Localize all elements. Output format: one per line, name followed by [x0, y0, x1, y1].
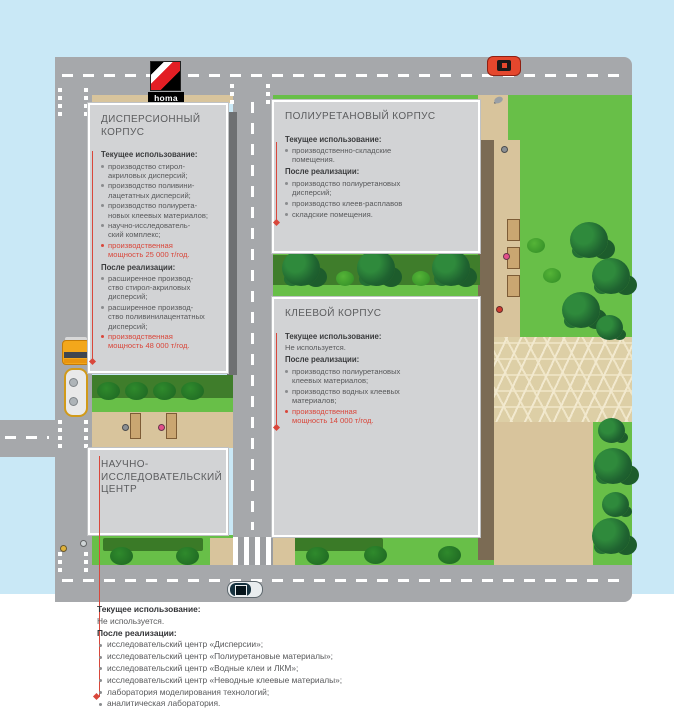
list-item: аналитическая лаборатория.	[97, 698, 527, 710]
list-item: Не используется.	[285, 343, 472, 352]
detail-text: Не используется.	[97, 616, 527, 628]
road-left	[55, 57, 92, 602]
bush-icon	[527, 238, 545, 253]
card-title: ДИСПЕРСИОННЫЙ КОРПУС	[101, 114, 220, 139]
list-item-highlight: производственная мощность 25 000 т/год.	[101, 241, 220, 259]
red-leader-line	[276, 142, 277, 224]
card-title: ПОЛИУРЕТАНОВЫЙ КОРПУС	[285, 111, 472, 124]
tree-icon	[598, 418, 625, 443]
list-item: научно-исследователь- ский комплекс;	[101, 221, 220, 239]
plaza-lower	[494, 422, 593, 565]
card-title: НАУЧНО- ИССЛЕДОВАТЕЛЬСКИЙ ЦЕНТР	[101, 459, 220, 497]
card-title: КЛЕЕВОЙ КОРПУС	[285, 308, 472, 321]
crosswalk-dots	[84, 552, 88, 572]
red-car-icon	[487, 56, 521, 76]
crosswalk-dots	[230, 84, 234, 104]
crosswalk-dots	[58, 88, 62, 116]
list-item: складские помещения.	[285, 210, 472, 219]
grass-strip-left	[92, 398, 233, 412]
list-item: расширенное производ- ство стирол-акрило…	[101, 274, 220, 302]
bush-icon	[306, 547, 329, 565]
adhesive-building-card: КЛЕЕВОЙ КОРПУС Текущее использование: Не…	[272, 297, 480, 537]
dispersion-building-roof-edge	[227, 112, 237, 375]
section-header: Текущее использование:	[285, 332, 472, 342]
list-item: исследовательский центр «Дисперсии»;	[97, 639, 527, 651]
road-bottom-centerline	[62, 579, 625, 582]
red-leader-line	[92, 151, 93, 363]
list-item: производство клеев-расплавов	[285, 199, 472, 208]
red-leader-line	[276, 333, 277, 429]
list-item-highlight: производственная мощность 48 000 т/год.	[101, 332, 220, 350]
bush-icon	[153, 382, 176, 400]
list-item: производство водных клеевых материалов;	[285, 387, 472, 405]
pedestrian-icon	[122, 424, 129, 431]
pedestrian-icon	[60, 545, 67, 552]
red-diamond-marker	[273, 424, 280, 431]
stone-plaza	[494, 337, 632, 422]
section-header: После реализации:	[101, 263, 220, 273]
tree-icon	[432, 250, 470, 286]
red-diamond-marker	[273, 219, 280, 226]
crosswalk-dots	[58, 552, 62, 572]
list-item: производство полиуретановых дисперсий;	[285, 179, 472, 197]
pedestrian-icon	[501, 146, 508, 153]
section-header: После реализации:	[285, 167, 472, 177]
list-item: исследовательский центр «Водные клеи и Л…	[97, 663, 527, 675]
bush-icon	[181, 382, 204, 400]
crosswalk-apron	[273, 538, 295, 565]
road-branch-centerline	[5, 436, 49, 439]
section-header: После реализации:	[97, 628, 527, 640]
tree-icon	[592, 518, 630, 554]
section-header: Текущее использование:	[101, 150, 220, 160]
bush-icon	[110, 547, 133, 565]
sedan-car-icon	[227, 581, 263, 598]
list-item: исследовательский центр «Неводные клеевы…	[97, 675, 527, 687]
research-center-card: НАУЧНО- ИССЛЕДОВАТЕЛЬСКИЙ ЦЕНТР	[88, 448, 228, 535]
crosswalk-apron	[210, 538, 233, 565]
list-item: производство поливини- лацетатных диспер…	[101, 181, 220, 199]
list-item: расширенное производ- ство поливинилацен…	[101, 303, 220, 331]
tree-icon	[282, 250, 320, 286]
road-central-centerline	[251, 102, 254, 530]
section-header: Текущее использование:	[285, 135, 472, 145]
pedestrian-icon	[503, 253, 510, 260]
pedestrian-icon	[158, 424, 165, 431]
list-item-highlight: производственная мощность 14 000 т/год.	[285, 407, 472, 425]
polyurethane-building-card: ПОЛИУРЕТАНОВЫЙ КОРПУС Текущее использова…	[272, 100, 480, 253]
dispersion-building-card: ДИСПЕРСИОННЫЙ КОРПУС Текущее использован…	[88, 103, 228, 373]
list-item: производство полиуретановых клеевых мате…	[285, 367, 472, 385]
road-top-centerline	[62, 74, 625, 77]
bench-icon	[507, 275, 520, 297]
bush-icon	[364, 546, 387, 564]
site-plan-infographic: homa ДИСПЕРСИОННЫЙ КОРПУС Текущее исполь…	[0, 0, 686, 720]
tree-icon	[596, 315, 623, 340]
bush-icon	[412, 271, 430, 286]
list-item: исследовательский центр «Полиуретановые …	[97, 651, 527, 663]
tree-icon	[357, 250, 395, 286]
building-east-wall	[478, 140, 494, 560]
bush-icon	[543, 268, 561, 283]
bush-icon	[336, 271, 354, 286]
homa-logo: homa	[148, 61, 184, 104]
tree-icon	[602, 492, 629, 517]
list-item: производственно-складские помещения.	[285, 146, 472, 164]
section-header: Текущее использование:	[97, 604, 527, 616]
crosswalk-dots	[266, 84, 270, 104]
tanker-truck-icon	[61, 337, 91, 419]
bush-icon	[97, 382, 120, 400]
zebra-crossing	[233, 537, 273, 565]
research-center-details: Текущее использование: Не используется. …	[97, 604, 527, 710]
tree-icon	[592, 258, 630, 294]
tree-icon	[594, 448, 632, 484]
dog-icon	[80, 540, 87, 547]
crosswalk-dots	[84, 420, 88, 448]
crosswalk-dots	[58, 420, 62, 448]
bench-icon	[507, 219, 520, 241]
bush-icon	[176, 547, 199, 565]
bench-icon	[130, 413, 141, 439]
road-bottom	[55, 565, 632, 602]
bush-icon	[125, 382, 148, 400]
tree-icon	[562, 292, 600, 328]
bench-icon	[166, 413, 177, 439]
list-item: лаборатория моделирования технологий;	[97, 687, 527, 699]
list-item: производство стирол- акриловых дисперсий…	[101, 162, 220, 180]
pedestrian-icon	[496, 306, 503, 313]
bush-icon	[438, 546, 461, 564]
red-diamond-marker	[89, 358, 96, 365]
homa-logo-mark	[150, 61, 181, 91]
section-header: После реализации:	[285, 355, 472, 365]
list-item: производство полиурета- новых клеевых ма…	[101, 201, 220, 219]
tree-icon	[570, 222, 608, 258]
